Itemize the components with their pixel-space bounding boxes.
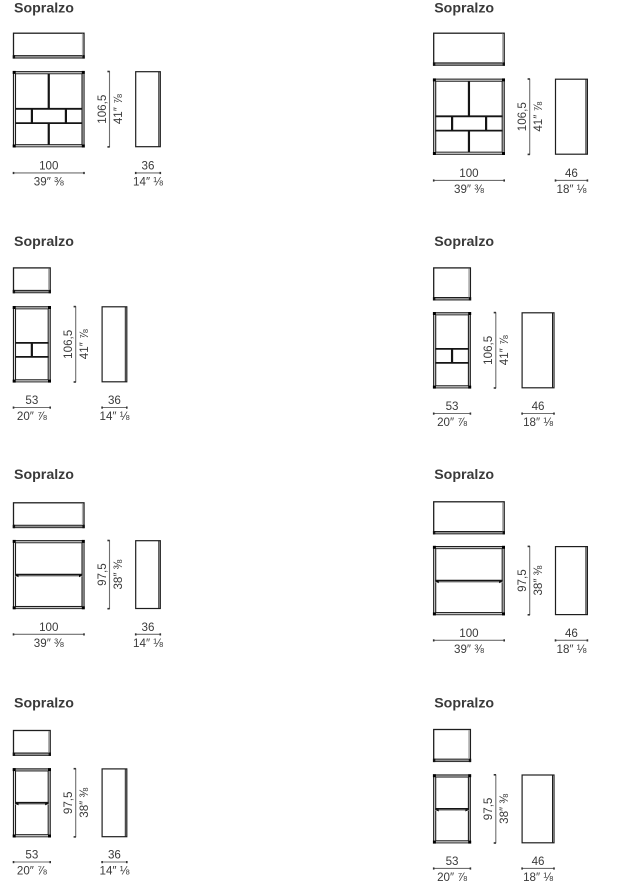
svg-text:Sopralzo: Sopralzo — [14, 467, 74, 483]
svg-text:100: 100 — [39, 160, 58, 173]
svg-text:Sopralzo: Sopralzo — [14, 234, 74, 250]
svg-text:100: 100 — [459, 167, 478, 180]
svg-text:38″ ⅜: 38″ ⅜ — [112, 559, 125, 589]
svg-text:36: 36 — [142, 621, 155, 634]
svg-text:38″ ⅜: 38″ ⅜ — [78, 788, 91, 818]
svg-text:18″ ⅛: 18″ ⅛ — [523, 871, 553, 884]
svg-text:18″ ⅛: 18″ ⅛ — [557, 643, 587, 656]
svg-text:106,5: 106,5 — [482, 336, 495, 365]
svg-text:97,5: 97,5 — [482, 798, 495, 821]
svg-text:36: 36 — [108, 849, 121, 862]
svg-text:38″ ⅜: 38″ ⅜ — [498, 794, 511, 824]
svg-text:53: 53 — [25, 394, 38, 407]
svg-text:53: 53 — [25, 849, 38, 862]
svg-text:20″ ⅞: 20″ ⅞ — [17, 865, 47, 878]
svg-text:14″ ⅛: 14″ ⅛ — [100, 410, 130, 423]
svg-text:46: 46 — [532, 855, 545, 868]
svg-text:Sopralzo: Sopralzo — [434, 234, 494, 250]
svg-text:46: 46 — [565, 167, 578, 180]
svg-text:36: 36 — [108, 394, 121, 407]
svg-text:41″ ⅞: 41″ ⅞ — [112, 94, 125, 124]
svg-text:14″ ⅛: 14″ ⅛ — [100, 865, 130, 878]
svg-text:39″ ⅜: 39″ ⅜ — [34, 637, 64, 650]
svg-text:39″ ⅜: 39″ ⅜ — [454, 183, 484, 196]
svg-text:18″ ⅛: 18″ ⅛ — [557, 183, 587, 196]
svg-text:Sopralzo: Sopralzo — [434, 467, 494, 483]
svg-text:18″ ⅛: 18″ ⅛ — [523, 416, 553, 429]
svg-text:20″ ⅞: 20″ ⅞ — [437, 871, 467, 884]
svg-text:36: 36 — [142, 160, 155, 173]
svg-text:41″ ⅞: 41″ ⅞ — [78, 329, 91, 359]
svg-text:Sopralzo: Sopralzo — [14, 1, 74, 17]
svg-text:46: 46 — [565, 627, 578, 640]
svg-text:20″ ⅞: 20″ ⅞ — [17, 410, 47, 423]
svg-text:106,5: 106,5 — [62, 330, 75, 359]
svg-text:53: 53 — [446, 400, 459, 413]
svg-text:97,5: 97,5 — [62, 792, 75, 815]
svg-text:97,5: 97,5 — [516, 569, 529, 592]
svg-text:39″ ⅜: 39″ ⅜ — [454, 643, 484, 656]
svg-text:20″ ⅞: 20″ ⅞ — [437, 416, 467, 429]
svg-text:106,5: 106,5 — [516, 102, 529, 131]
svg-text:41″ ⅞: 41″ ⅞ — [498, 335, 511, 365]
svg-text:106,5: 106,5 — [96, 95, 109, 124]
svg-text:100: 100 — [39, 621, 58, 634]
svg-text:14″ ⅛: 14″ ⅛ — [133, 637, 163, 650]
svg-text:97,5: 97,5 — [96, 563, 109, 586]
svg-text:38″ ⅜: 38″ ⅜ — [532, 565, 545, 595]
svg-text:14″ ⅛: 14″ ⅛ — [133, 175, 163, 188]
svg-text:Sopralzo: Sopralzo — [434, 1, 494, 17]
svg-text:39″ ⅜: 39″ ⅜ — [34, 175, 64, 188]
svg-text:Sopralzo: Sopralzo — [14, 696, 74, 712]
svg-text:41″ ⅞: 41″ ⅞ — [532, 101, 545, 131]
svg-text:53: 53 — [446, 855, 459, 868]
svg-text:46: 46 — [532, 400, 545, 413]
svg-text:100: 100 — [459, 627, 478, 640]
svg-text:Sopralzo: Sopralzo — [434, 696, 494, 712]
